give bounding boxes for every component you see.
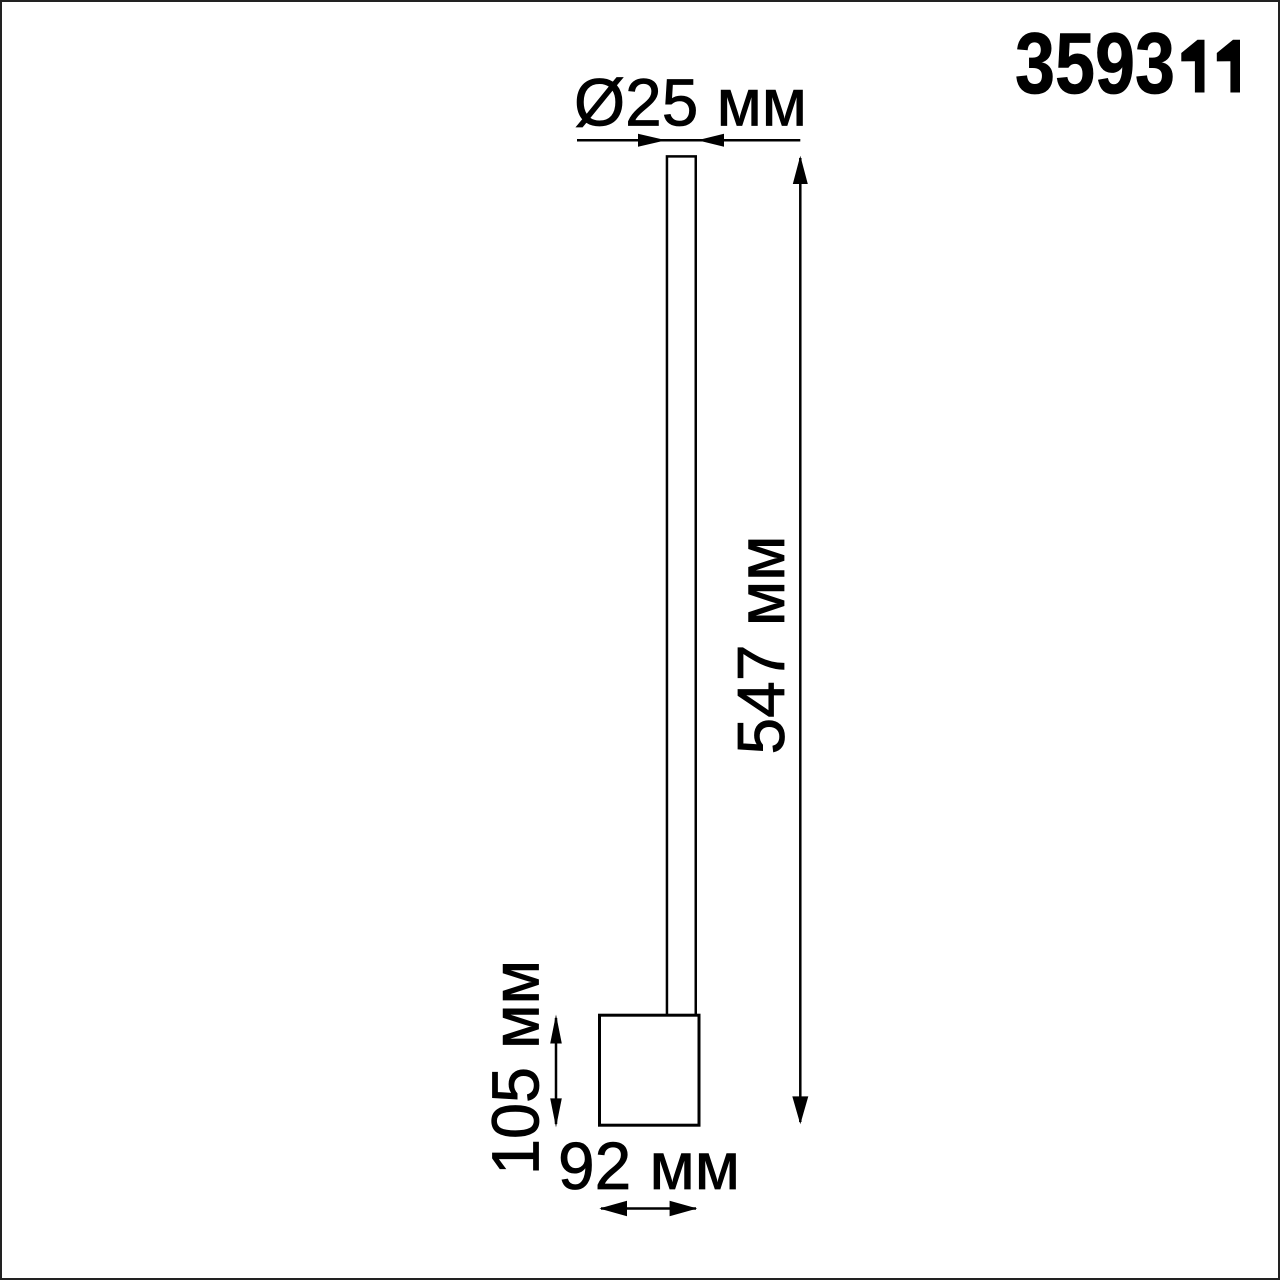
svg-text:92 мм: 92 мм bbox=[558, 1129, 740, 1204]
svg-text:105 мм: 105 мм bbox=[479, 960, 554, 1175]
svg-text:Ø25 мм: Ø25 мм bbox=[574, 66, 807, 141]
svg-text:3593: 3593 bbox=[1015, 16, 1175, 112]
svg-text:547 мм: 547 мм bbox=[724, 536, 799, 755]
